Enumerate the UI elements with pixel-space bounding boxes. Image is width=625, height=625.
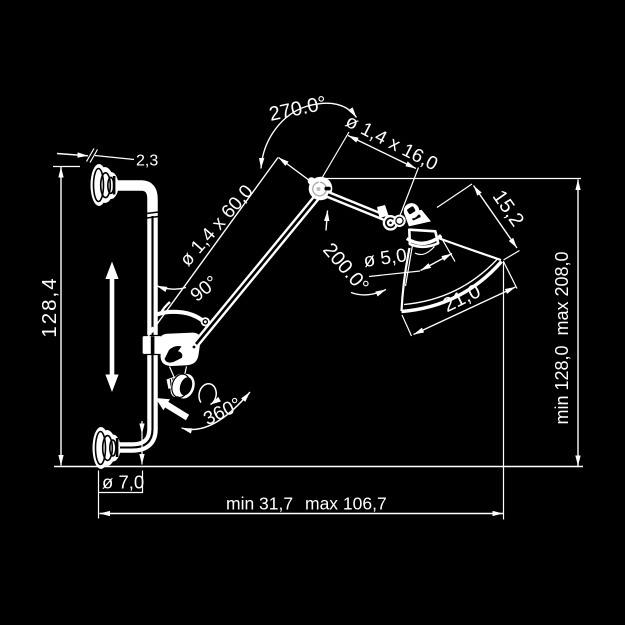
svg-text:min 128,0 max 208,0: min 128,0 max 208,0 bbox=[552, 251, 572, 424]
svg-text:2,3: 2,3 bbox=[136, 153, 158, 170]
svg-text:max 106,7: max 106,7 bbox=[305, 494, 387, 514]
svg-text:ø 7,0: ø 7,0 bbox=[102, 472, 144, 493]
svg-text:min 31,7: min 31,7 bbox=[226, 494, 293, 514]
svg-text:128,4: 128,4 bbox=[38, 276, 61, 337]
